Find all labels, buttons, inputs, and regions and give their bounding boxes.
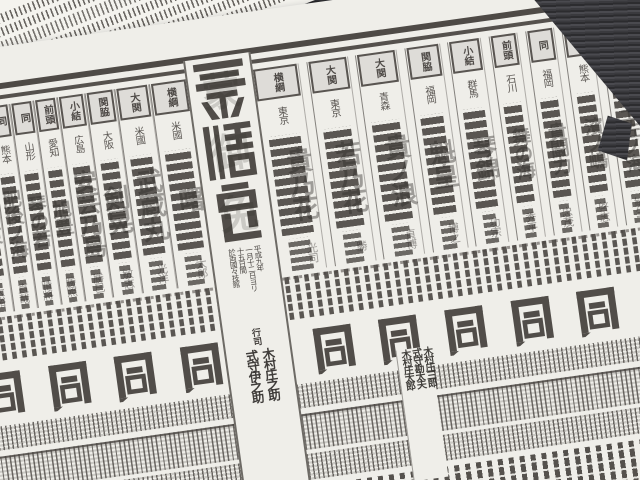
rank-label: 関脇 xyxy=(406,44,442,80)
shikona-name: 魁皇 xyxy=(416,110,460,217)
given-name: 貞博 xyxy=(384,221,420,259)
shikona-name: 貴ノ浪 xyxy=(367,116,417,224)
permit-title-char-mou: 蒙 xyxy=(189,55,253,122)
rank-label: 小結 xyxy=(59,94,87,129)
given-name: 光司 xyxy=(280,234,322,273)
origin-prefecture: 福岡 xyxy=(410,75,448,113)
given-name: 敏志 xyxy=(114,260,138,296)
given-name: 勝巳 xyxy=(86,264,109,300)
origin-prefecture: 山形 xyxy=(15,133,42,170)
permit-title-char-men: 免 xyxy=(207,178,271,245)
given-name: 光洋 xyxy=(143,255,172,292)
shikona-name: 若乃花 xyxy=(318,123,368,231)
rank-label: 大関 xyxy=(308,57,350,94)
rank-label: 同 xyxy=(527,28,556,63)
head-gyoji-names: 木村庄之助 式守伊之助 xyxy=(243,347,279,403)
given-name: 秀平 xyxy=(517,204,541,240)
given-name: 敏生 xyxy=(626,188,640,224)
origin-prefecture: 愛知 xyxy=(39,129,66,166)
given-name: 大裕 xyxy=(0,278,9,314)
rank-label: 関脇 xyxy=(87,90,117,125)
dou-ditto-glyph: 同 xyxy=(110,347,161,403)
rank-label: 大関 xyxy=(357,50,399,87)
west-division-block: 横綱 米國 曙 太郎 大関 米國 武蔵丸 光 xyxy=(0,79,216,318)
origin-prefecture: 青森 xyxy=(361,81,405,120)
dou-ditto-glyph: 同 xyxy=(176,338,227,394)
dou-glyph-shape xyxy=(441,301,492,357)
origin-prefecture: 群馬 xyxy=(453,70,489,108)
origin-prefecture: 米國 xyxy=(154,111,196,150)
dou-glyph-shape xyxy=(0,366,29,422)
dou-glyph-shape xyxy=(309,319,360,375)
given-name: 啓志 xyxy=(590,193,614,229)
banzuke-sheet: 横綱 米國 曙 太郎 大関 米國 武蔵丸 光 xyxy=(0,0,640,480)
given-name: 直哉 xyxy=(14,275,33,311)
gyoji-section-label: 行司 xyxy=(248,327,263,347)
permit-title-char-go: 御 xyxy=(198,116,262,183)
tournament-date-block: 平成九年 一月十二日ヨリ 十五日間 於両國々技館 xyxy=(226,244,271,326)
given-name: 勝照 xyxy=(62,268,81,304)
origin-prefecture: 石川 xyxy=(494,64,525,101)
dou-ditto-glyph: 同 xyxy=(441,301,492,357)
dou-glyph-shape xyxy=(507,292,558,348)
dou-glyph-shape xyxy=(110,347,161,403)
origin-prefecture: 米國 xyxy=(120,116,157,154)
dou-ditto-glyph: 同 xyxy=(44,357,95,413)
rank-label: 同 xyxy=(11,101,35,135)
shikona-name: 貴闘力 xyxy=(537,94,574,200)
given-name: 功宗 xyxy=(476,209,504,246)
rank-label: 前頭 xyxy=(35,98,59,132)
rank-label: 小結 xyxy=(449,38,483,74)
given-name: 勝 xyxy=(335,228,371,266)
origin-prefecture: 東京 xyxy=(256,95,306,135)
origin-prefecture: 東京 xyxy=(311,88,355,127)
given-name: 忠茂 xyxy=(554,199,578,235)
origin-prefecture: 広島 xyxy=(62,125,93,162)
shikona-name: 琴錦 xyxy=(460,104,502,211)
shikona-name: 舞の海 xyxy=(501,99,538,205)
dou-ditto-glyph: 同 xyxy=(0,366,29,422)
dou-ditto-glyph: 同 xyxy=(573,282,624,338)
rank-label: 前頭 xyxy=(491,33,520,68)
origin-prefecture: 大阪 xyxy=(90,121,122,159)
photo-of-banzuke: 横綱 米國 曙 太郎 大関 米國 武蔵丸 光 xyxy=(0,0,640,480)
origin-prefecture: 福岡 xyxy=(530,59,561,96)
dou-ditto-glyph: 同 xyxy=(309,319,360,375)
rank-label: 横綱 xyxy=(150,79,190,116)
dou-glyph-shape xyxy=(176,338,227,394)
rank-label: 大関 xyxy=(116,85,151,121)
dou-ditto-glyph: 同 xyxy=(507,292,558,348)
given-name: 博之 xyxy=(433,215,463,252)
dou-glyph-shape xyxy=(573,282,624,338)
dou-glyph-shape xyxy=(44,357,95,413)
given-name: 太郎 xyxy=(177,250,211,288)
given-name: 晴將 xyxy=(38,272,57,308)
